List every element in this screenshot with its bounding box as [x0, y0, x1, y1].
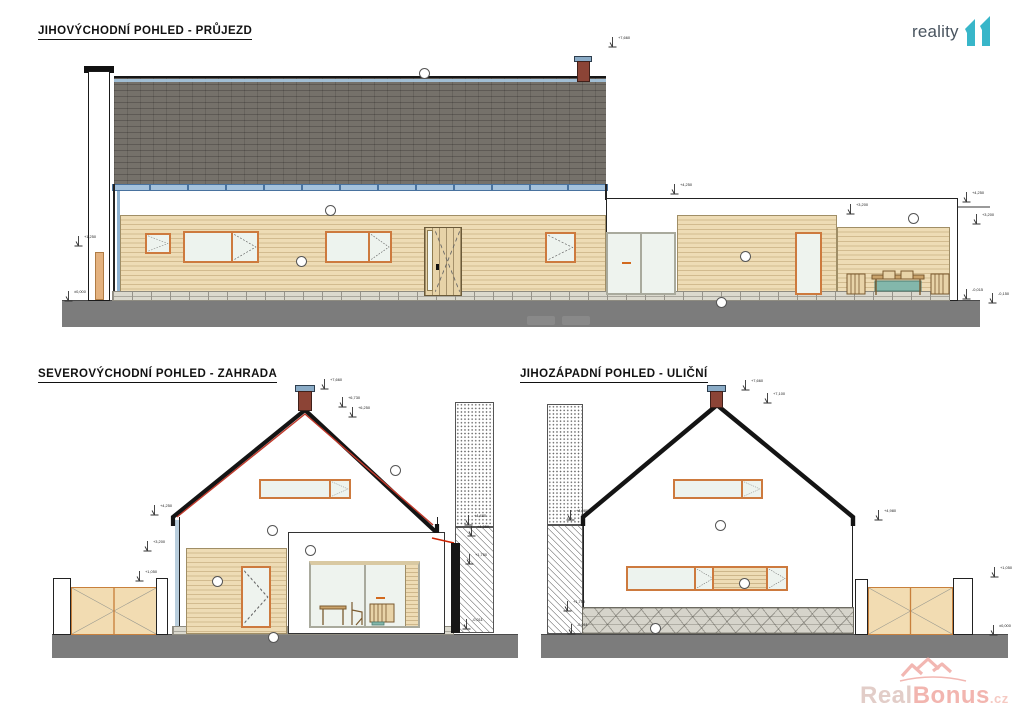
level-marker: +4,980 [566, 509, 591, 522]
reference-bubble [650, 623, 661, 634]
gutter-fascia [112, 184, 608, 191]
neighbor-wall-lower-street [547, 525, 583, 634]
tiny-orange-note [376, 597, 385, 599]
ridge-tile-line [114, 79, 606, 82]
fence-post [53, 578, 71, 635]
realbonus-watermark: RealBonus.cz [860, 656, 1020, 710]
entry-door [424, 227, 462, 296]
watermark-tld: .cz [990, 691, 1009, 706]
roof-northeast [160, 383, 470, 533]
level-marker: +1,750 [563, 600, 588, 613]
level-marker: +6,250 [348, 406, 373, 419]
ground-watermark-patch [527, 316, 555, 325]
title-southwest-elevation: JIHOZÁPADNÍ POHLED - ULIČNÍ [520, 368, 708, 383]
level-marker: +3,200 [143, 540, 168, 553]
level-marker: -0,150 [988, 292, 1012, 305]
window-1 [145, 233, 171, 254]
level-marker: +7,100 [763, 392, 788, 405]
reference-bubble [268, 632, 279, 643]
reality11-logo: reality [912, 16, 996, 47]
level-marker: +7,660 [320, 378, 345, 391]
stone-plinth [582, 607, 854, 634]
reference-bubble [267, 525, 278, 536]
level-marker: +1,750 [465, 553, 490, 566]
level-marker: +4,980 [874, 509, 899, 522]
level-marker: +3,200 [972, 213, 997, 226]
neighbor-fence-line [958, 206, 990, 208]
siding-garden [186, 548, 287, 634]
watermark-real: Real [860, 682, 913, 709]
plinth-paving-strip [112, 291, 950, 301]
logo-11-icon [962, 16, 996, 47]
ground-line-southwest [541, 634, 1008, 658]
interior-furniture [312, 596, 412, 627]
reference-bubble [325, 205, 336, 216]
architectural-drawing-sheet: JIHOVÝCHODNÍ POHLED - PRŮJEZD SEVEROVÝCH… [0, 0, 1024, 711]
fence-post [953, 578, 973, 635]
level-marker: ±0,000 [989, 624, 1014, 637]
level-marker: +4,250 [467, 525, 492, 538]
door-handle [436, 264, 439, 270]
logo-word: reality [912, 22, 959, 42]
ground-line-southeast [62, 300, 980, 327]
realbonus-houses-icon [898, 656, 968, 682]
reference-bubble [212, 576, 223, 587]
chimney-left-timber-strip [95, 252, 104, 300]
chimney-garden [298, 391, 312, 411]
reference-bubble [419, 68, 430, 79]
level-marker: +1,250 [74, 235, 99, 248]
level-marker: -0,011 [567, 623, 591, 636]
level-marker: +4,250 [670, 183, 695, 196]
level-marker: +7,660 [608, 36, 633, 49]
garden-gate [71, 587, 157, 635]
terrace-furniture [845, 268, 951, 297]
street-gate [868, 587, 953, 635]
level-marker: -0,015 [962, 288, 986, 301]
level-marker: +7,660 [741, 379, 766, 392]
reference-bubble [390, 465, 401, 476]
window-2 [183, 231, 259, 263]
tiny-orange-note [622, 262, 631, 264]
watermark-bonus: Bonus [913, 682, 990, 709]
ground-watermark-patch [562, 316, 590, 325]
level-marker: +1,050 [135, 570, 160, 583]
window-4 [545, 232, 576, 263]
level-marker: ±0,000 [64, 290, 89, 303]
fence-post [156, 578, 168, 635]
window-3 [325, 231, 392, 263]
level-marker: -0,011 [462, 618, 486, 631]
wing-terrace-door [795, 232, 822, 295]
reference-bubble [305, 545, 316, 556]
ground-line-northeast [52, 634, 518, 658]
chimney-street [710, 391, 723, 408]
sliding-glass-door-passage [606, 232, 676, 295]
garden-door [241, 566, 271, 628]
reference-bubble [740, 251, 751, 262]
level-marker: +4,250 [150, 504, 175, 517]
main-roof [114, 76, 606, 184]
reference-bubble [715, 520, 726, 531]
level-marker: +4,250 [962, 191, 987, 204]
reference-bubble [296, 256, 307, 267]
insulation-band [451, 543, 460, 633]
fence-post [855, 579, 868, 635]
main-wall-left-edge [113, 184, 115, 301]
title-northeast-elevation: SEVEROVÝCHODNÍ POHLED - ZAHRADA [38, 368, 277, 383]
level-marker: +3,200 [846, 203, 871, 216]
reference-bubble [739, 578, 750, 589]
entry-door-sidelight [427, 230, 433, 291]
roof-chimney [577, 61, 590, 82]
reference-bubble [716, 297, 727, 308]
level-marker: +1,050 [990, 566, 1015, 579]
title-southeast-elevation: JIHOVÝCHODNÍ POHLED - PRŮJEZD [38, 25, 252, 40]
downpipe-garden [175, 520, 179, 634]
reference-bubble [908, 213, 919, 224]
street-strip-window [626, 566, 788, 591]
